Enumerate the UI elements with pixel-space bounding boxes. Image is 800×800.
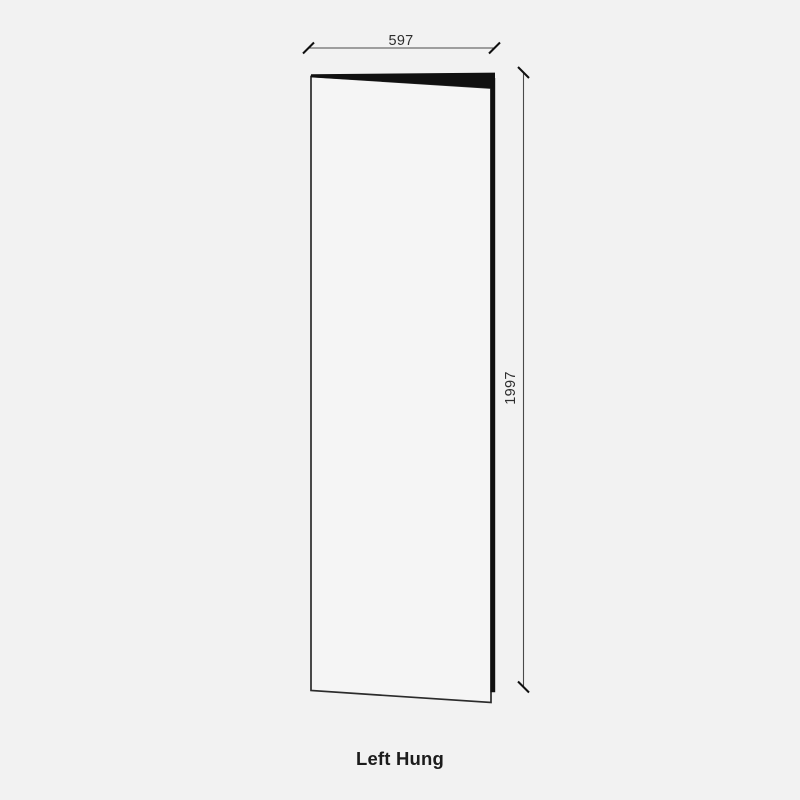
door-diagram-canvas: 597 1997 Left Hung [0, 0, 800, 800]
diagram-caption: Left Hung [0, 748, 800, 770]
door-swing-diagram: 597 1997 [0, 0, 800, 800]
height-dimension-label: 1997 [503, 371, 519, 404]
door-face [311, 77, 491, 703]
height-dimension: 1997 [503, 67, 529, 693]
width-dimension-label: 597 [388, 33, 413, 49]
width-dimension: 597 [303, 33, 500, 54]
